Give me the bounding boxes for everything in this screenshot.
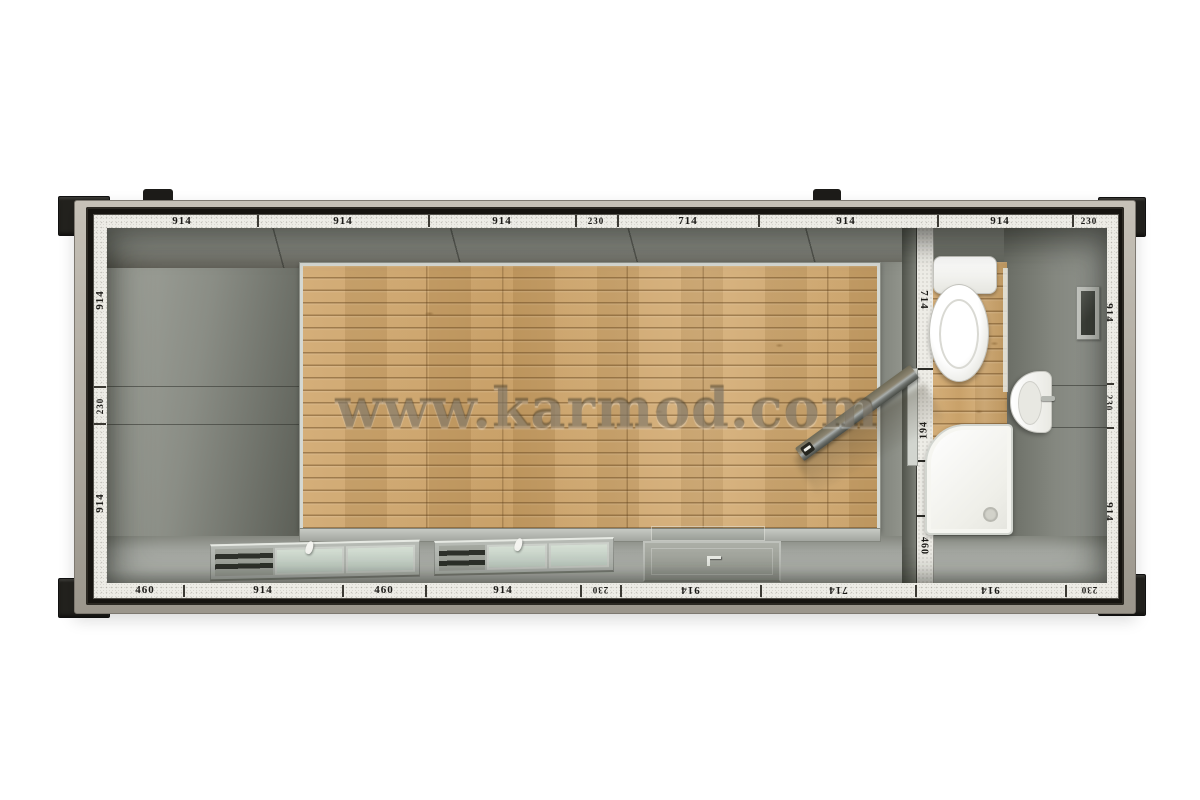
- dim-top-6: 914: [836, 215, 856, 227]
- window-2-inner: [439, 542, 609, 571]
- entry-door-threshold: [651, 526, 765, 541]
- interior-room-view: 714 194 460: [107, 228, 1107, 583]
- dim-top-4: 230: [588, 216, 605, 226]
- shower-drain: [983, 507, 998, 522]
- entry-door-handle: [707, 556, 721, 559]
- dim-left-1: 914: [94, 290, 106, 310]
- dim-top-2: 914: [333, 215, 353, 227]
- dim-bottom-1: 460: [135, 584, 155, 596]
- dim-tick: [94, 423, 106, 425]
- dim-tick: [760, 585, 762, 597]
- dim-bottom-3: 460: [374, 584, 394, 596]
- dim-tick: [1065, 585, 1067, 597]
- dim-partition-1: 714: [918, 290, 930, 310]
- entry-door: [643, 541, 781, 582]
- dim-bottom-9: 230: [1081, 585, 1098, 595]
- dim-tick: [183, 585, 185, 597]
- window-1-inner: [215, 545, 415, 577]
- dim-tick: [758, 215, 760, 227]
- dim-left-2: 230: [95, 398, 105, 415]
- bathroom-vent-window: [1076, 286, 1100, 340]
- window-1: [210, 540, 420, 582]
- wall-panel-seam: [1044, 427, 1107, 428]
- dim-tick: [617, 215, 619, 227]
- dim-bottom-8: 914: [980, 584, 1000, 596]
- window-glass-pane: [549, 542, 609, 568]
- left-wall-face: [107, 228, 302, 583]
- dim-tick: [428, 215, 430, 227]
- dim-bottom-5: 230: [592, 585, 609, 595]
- basin-faucet: [1041, 396, 1055, 401]
- dim-tick: [580, 585, 582, 597]
- watermark-text: www.karmod.com: [287, 376, 927, 440]
- dim-partition-3: 460: [919, 537, 930, 555]
- dim-top-5: 714: [678, 215, 698, 227]
- dim-top-7: 914: [990, 215, 1010, 227]
- glass-screen-edge: [1003, 268, 1007, 392]
- dim-tick: [94, 386, 106, 388]
- dim-bottom-7: 714: [828, 584, 848, 596]
- window-track-slots: [439, 545, 485, 571]
- dim-tick: [620, 585, 622, 597]
- dim-tick: [1072, 215, 1074, 227]
- toilet-bowl: [929, 284, 989, 382]
- window-2: [434, 537, 614, 576]
- bathroom-door-handle: [800, 441, 816, 456]
- dim-left-3: 914: [94, 493, 106, 513]
- wall-panel-seam: [107, 386, 302, 387]
- dim-top-3: 914: [492, 215, 512, 227]
- wall-panel-seam: [1044, 385, 1107, 386]
- dim-tick: [575, 215, 577, 227]
- dim-bottom-2: 914: [253, 584, 273, 596]
- dim-tick: [425, 585, 427, 597]
- dim-bottom-4: 914: [493, 584, 513, 596]
- dim-tick: [915, 585, 917, 597]
- dim-tick: [342, 585, 344, 597]
- dim-bottom-6: 914: [680, 584, 700, 596]
- dim-top-1: 914: [172, 215, 192, 227]
- floor-plan-render: 914 914 914 230 714 914 914 230 460 914 …: [0, 0, 1200, 800]
- window-track-slots: [215, 548, 273, 576]
- window-glass-pane: [346, 545, 415, 574]
- shower-tray: [925, 424, 1013, 535]
- dim-tick: [257, 215, 259, 227]
- wall-panel-seam: [107, 424, 302, 425]
- dim-top-8: 230: [1081, 216, 1098, 226]
- dim-tick: [917, 368, 933, 370]
- dim-tick: [937, 215, 939, 227]
